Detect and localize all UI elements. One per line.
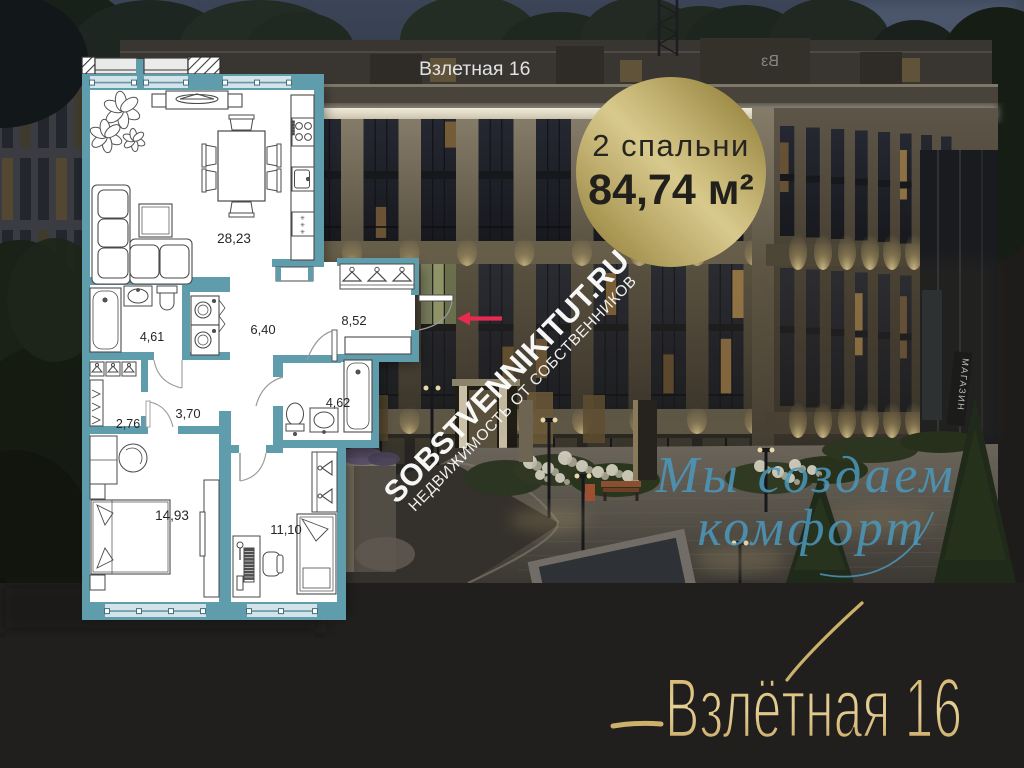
svg-text:✳: ✳ — [300, 229, 305, 236]
svg-text:11,10: 11,10 — [270, 522, 302, 537]
svg-text:3,70: 3,70 — [175, 406, 200, 421]
svg-text:28,23: 28,23 — [217, 231, 251, 246]
svg-text:Вз: Вз — [761, 53, 779, 70]
svg-text:4,61: 4,61 — [140, 330, 164, 344]
svg-text:2,76: 2,76 — [116, 417, 140, 431]
svg-text:Взлётная 16: Взлётная 16 — [665, 661, 962, 755]
svg-text:2 спальни: 2 спальни — [592, 128, 750, 163]
svg-text:✳: ✳ — [300, 215, 305, 222]
svg-text:6,40: 6,40 — [250, 322, 275, 337]
svg-text:комфорт: комфорт — [697, 500, 926, 557]
svg-text:Взлетная 16: Взлетная 16 — [419, 58, 531, 80]
svg-text:14,93: 14,93 — [155, 508, 189, 523]
svg-text:✳: ✳ — [300, 222, 305, 229]
svg-text:8,52: 8,52 — [341, 313, 366, 328]
svg-text:Мы создаем: Мы создаем — [655, 447, 957, 504]
svg-text:84,74 м²: 84,74 м² — [588, 166, 754, 214]
svg-text:4,62: 4,62 — [326, 396, 350, 410]
